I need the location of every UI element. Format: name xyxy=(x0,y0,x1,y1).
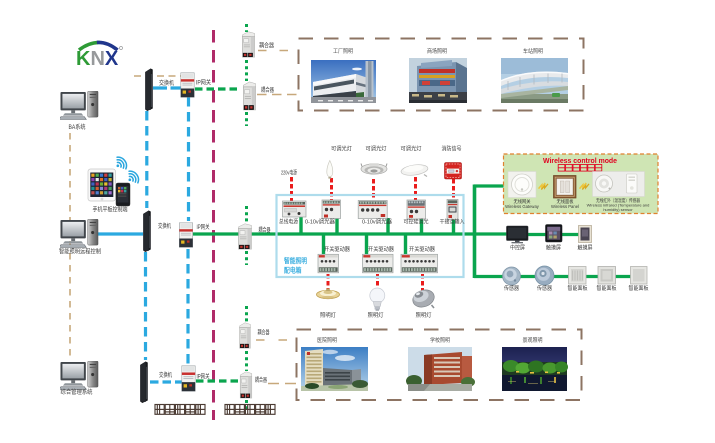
svg-text:耦合器: 耦合器 xyxy=(259,42,274,50)
svg-text:耦合器: 耦合器 xyxy=(261,86,274,94)
svg-text:医院照明: 医院照明 xyxy=(317,336,337,344)
svg-text:智能照明: 智能照明 xyxy=(284,256,307,265)
svg-text:可控硅调光: 可控硅调光 xyxy=(404,218,429,226)
svg-text:交换机: 交换机 xyxy=(159,371,172,379)
svg-text:可调光灯: 可调光灯 xyxy=(401,145,422,153)
svg-text:消防信号: 消防信号 xyxy=(442,145,462,153)
svg-text:照明灯: 照明灯 xyxy=(368,311,384,319)
svg-text:耦合器: 耦合器 xyxy=(255,376,267,384)
svg-text:商场照明: 商场照明 xyxy=(427,47,447,55)
svg-text:0-10v调光器: 0-10v调光器 xyxy=(362,218,392,226)
svg-text:IP网关: IP网关 xyxy=(197,373,210,381)
svg-text:手机平板控制端: 手机平板控制端 xyxy=(93,206,128,214)
svg-text:可调光灯: 可调光灯 xyxy=(366,145,387,153)
svg-text:工厂照明: 工厂照明 xyxy=(333,48,353,55)
svg-text:Wireless Panel: Wireless Panel xyxy=(551,204,579,209)
svg-text:传感器: 传感器 xyxy=(537,284,552,292)
svg-text:humidity) sensor: humidity) sensor xyxy=(603,207,633,212)
svg-text:中控屏: 中控屏 xyxy=(510,244,525,252)
svg-text:耦合器: 耦合器 xyxy=(259,226,271,234)
svg-text:干接点输入: 干接点输入 xyxy=(440,218,465,226)
svg-text:景观照明: 景观照明 xyxy=(523,337,543,344)
svg-text:智能面板: 智能面板 xyxy=(629,284,649,292)
svg-text:智能照明远程控制: 智能照明远程控制 xyxy=(59,248,101,256)
svg-text:车站照明: 车站照明 xyxy=(523,47,543,55)
svg-text:可调光灯: 可调光灯 xyxy=(331,145,352,153)
svg-text:智能面板: 智能面板 xyxy=(568,284,588,292)
svg-text:配电箱: 配电箱 xyxy=(284,266,302,275)
svg-text:KNX: KNX xyxy=(76,48,119,70)
svg-text:开关驱动器: 开关驱动器 xyxy=(409,245,435,253)
svg-text:传感器: 传感器 xyxy=(504,284,519,292)
svg-text:交换机: 交换机 xyxy=(158,222,171,230)
svg-text:0-10v调光器: 0-10v调光器 xyxy=(305,218,335,226)
svg-text:Wireless control mode: Wireless control mode xyxy=(543,158,617,165)
svg-text:触摸屏: 触摸屏 xyxy=(546,244,561,252)
svg-text:触摸屏: 触摸屏 xyxy=(578,244,593,252)
svg-text:耦合器: 耦合器 xyxy=(258,329,270,337)
svg-text:总线电源: 总线电源 xyxy=(279,218,298,226)
svg-text:220v电源: 220v电源 xyxy=(281,169,297,177)
svg-text:BA系统: BA系统 xyxy=(69,123,86,131)
svg-text:开关驱动器: 开关驱动器 xyxy=(324,245,350,253)
svg-text:交换机: 交换机 xyxy=(159,79,174,87)
svg-text:照明灯: 照明灯 xyxy=(320,311,336,319)
svg-text:IP网关: IP网关 xyxy=(197,223,210,231)
svg-text:学校照明: 学校照明 xyxy=(430,336,450,344)
svg-text:综合管理系统: 综合管理系统 xyxy=(61,388,93,396)
svg-text:IP网关: IP网关 xyxy=(196,79,211,87)
svg-text:Wireless Gateway: Wireless Gateway xyxy=(505,204,540,209)
svg-text:智能面板: 智能面板 xyxy=(597,284,617,292)
svg-text:照明灯: 照明灯 xyxy=(416,311,432,319)
svg-text:开关驱动器: 开关驱动器 xyxy=(368,245,394,253)
